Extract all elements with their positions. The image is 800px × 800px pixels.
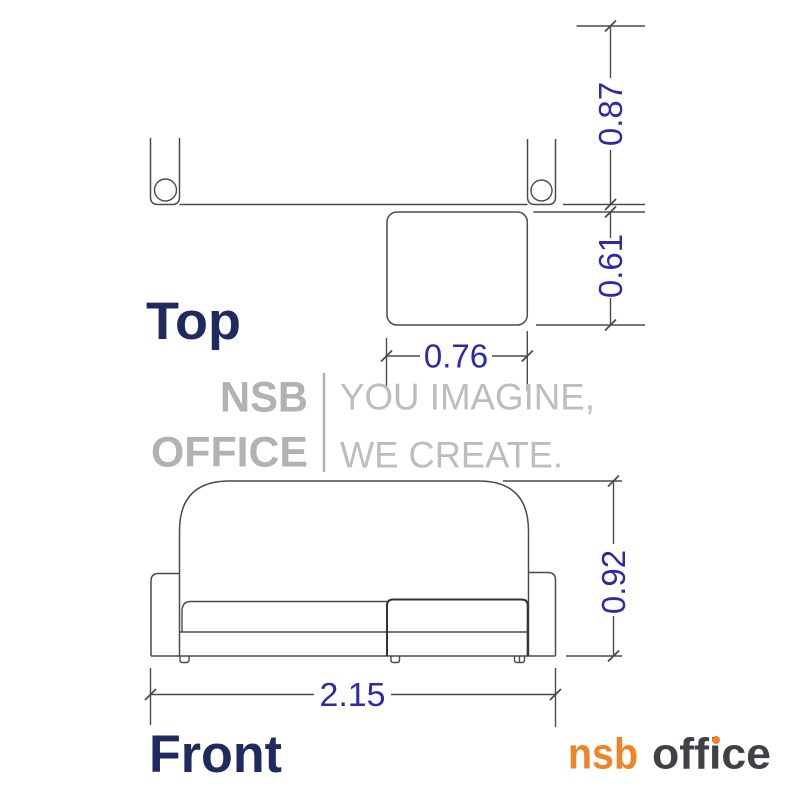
svg-text:WE CREATE.: WE CREATE. xyxy=(340,435,563,476)
svg-text:0.87: 0.87 xyxy=(592,82,629,146)
svg-text:2.15: 2.15 xyxy=(320,676,386,713)
svg-text:0.61: 0.61 xyxy=(592,234,629,298)
svg-text:nsb: nsb xyxy=(568,730,638,779)
svg-text:OFFICE: OFFICE xyxy=(151,429,308,477)
svg-text:office: office xyxy=(652,730,771,779)
svg-text:Top: Top xyxy=(146,292,241,351)
svg-text:NSB: NSB xyxy=(220,374,308,422)
svg-text:0.76: 0.76 xyxy=(424,338,488,375)
svg-text:YOU IMAGINE,: YOU IMAGINE, xyxy=(340,377,595,418)
svg-text:Front: Front xyxy=(149,725,282,784)
svg-text:0.92: 0.92 xyxy=(595,550,632,614)
